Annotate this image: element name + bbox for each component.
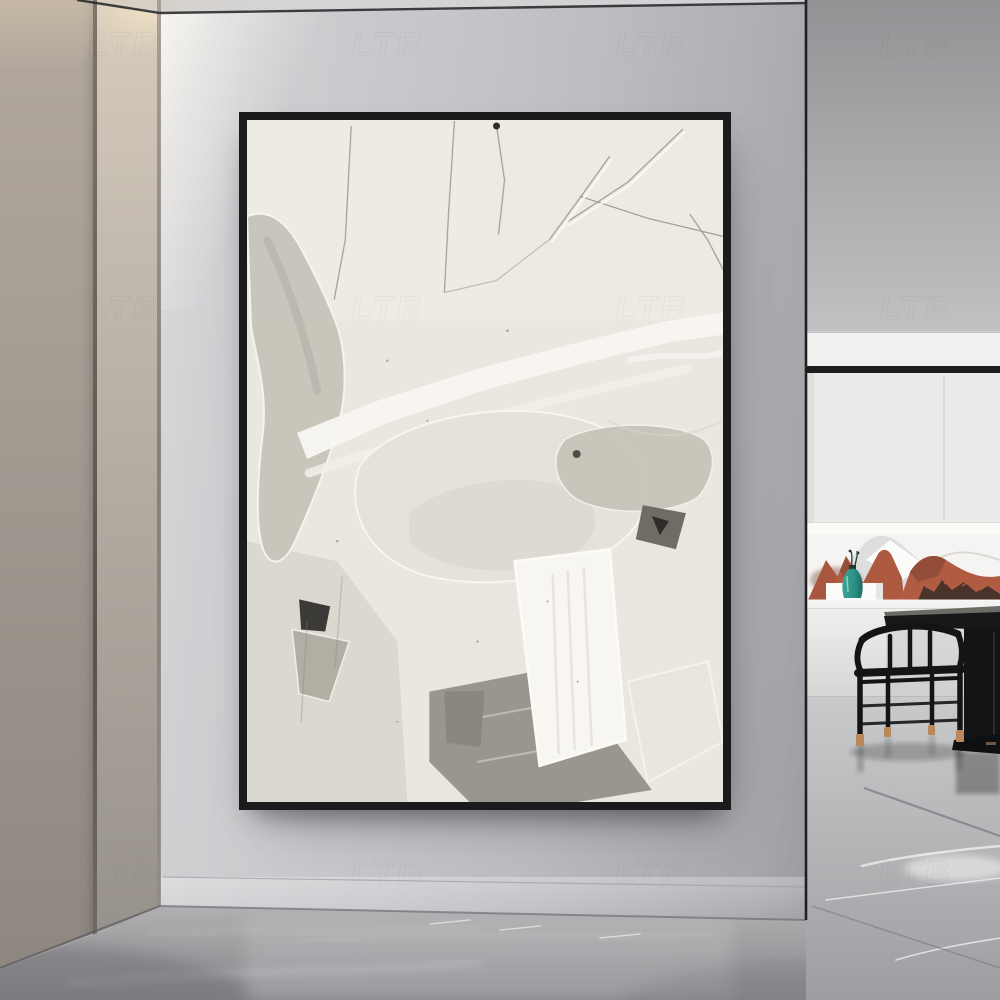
display-pedestal (826, 583, 883, 601)
chair-front-legs (860, 672, 960, 742)
paint-ridge-highlights (552, 132, 722, 435)
furniture-reflections (850, 734, 1000, 794)
paint-black-dot (493, 123, 500, 130)
watermark: LTB (85, 854, 163, 893)
island-front (806, 609, 1000, 698)
wall-corner-edge (157, 0, 161, 909)
terracotta-sculpture (808, 550, 1000, 600)
chair-rear-legs (888, 674, 932, 734)
table-edge (884, 612, 1000, 630)
chair-seat (858, 669, 962, 673)
paint-bottom-shapes (292, 549, 723, 802)
far-floor (806, 697, 1000, 1000)
soffit-shadow-line (806, 366, 1000, 373)
painting-reflection (245, 912, 733, 1000)
dining-room-graphic (806, 0, 1000, 1000)
watermark: LTB (613, 854, 691, 893)
watermark: LTB (613, 26, 691, 65)
chair-right-arm (958, 634, 962, 666)
paint-white-sweep (297, 313, 723, 473)
upper-cabinets (806, 373, 1000, 523)
teal-vase (842, 550, 862, 598)
hallway-panel-left (0, 0, 95, 971)
watermark: LTB (349, 290, 427, 329)
baseboard (160, 877, 806, 922)
abstract-painting-canvas (247, 120, 723, 802)
hallway-panel-right (95, 0, 160, 936)
paint-crack-lines (301, 121, 723, 722)
chair-back-slats (890, 630, 930, 670)
marble-backsplash (806, 523, 1000, 602)
table-foot (952, 734, 1000, 754)
cabinet-soffit (806, 333, 1000, 366)
watermark: LTB (85, 290, 163, 329)
dining-room-view (806, 0, 1000, 1000)
watermark: LTB (349, 854, 427, 893)
chair-stretchers (860, 702, 960, 724)
paint-gray-figure (247, 214, 345, 562)
table-top-surface (884, 606, 1000, 618)
interior-scene: LTB LTB LTB LTB LTB LTB LTB LTB LTB LTB … (0, 0, 1000, 1000)
table-pedestal (964, 628, 1000, 746)
paint-center-shapes (355, 411, 712, 582)
paint-speckles (336, 329, 579, 722)
abstract-painting-frame (239, 112, 731, 810)
dining-table (884, 606, 1000, 754)
chair-crest-rail (862, 626, 958, 640)
panel-seam (93, 0, 97, 935)
panel-glow (0, 0, 95, 70)
watermark: LTB (877, 290, 955, 329)
watermark: LTB (349, 26, 427, 65)
floor-dark-vein (864, 788, 1000, 836)
chair-left-arm (857, 640, 862, 672)
dried-botanical-pile (918, 580, 1000, 600)
counter-ledge (806, 600, 1000, 609)
watermark: LTB (877, 854, 955, 893)
black-armchair (857, 626, 962, 742)
watermark: LTB (613, 290, 691, 329)
watermark: LTB (877, 26, 955, 65)
chair-foot-tips (856, 725, 964, 746)
watermark: LTB (85, 26, 163, 65)
